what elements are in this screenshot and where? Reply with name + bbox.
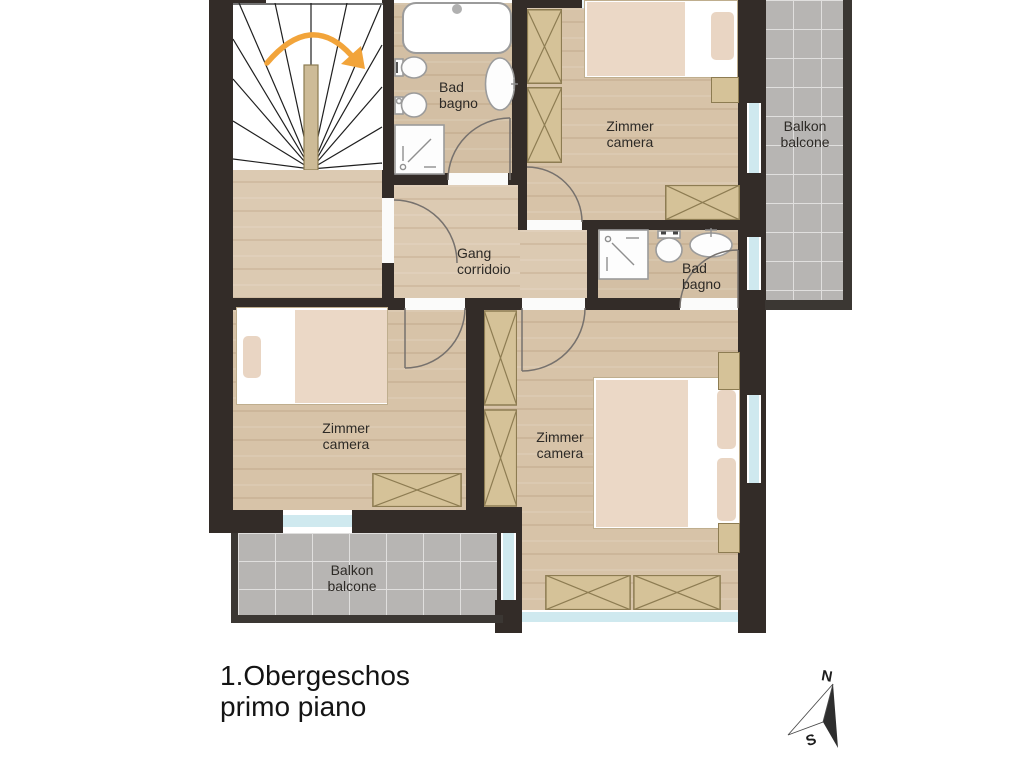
room-name-it: balcone [769,134,841,150]
room-name-de: Gang [457,245,511,261]
room-label-bath-top: Bad bagno [439,79,478,111]
room-name-it: corridoio [457,261,511,277]
room-name-de: Balkon [769,118,841,134]
room-label-balcony-bottom: Balkon balcone [312,562,392,594]
room-name-it: camera [520,445,600,461]
door-arc [405,308,465,368]
room-name-de: Zimmer [306,420,386,436]
room-label-bedroom-left: Zimmer camera [306,420,386,452]
room-name-it: bagno [682,276,721,292]
room-label-bath-right: Bad bagno [682,260,721,292]
compass-south-label: S [804,731,819,750]
door-arc [448,118,510,180]
floor-title: 1.Obergeschos primo piano [220,660,410,722]
room-label-balcony-right: Balkon balcone [769,118,841,150]
floor-title-de: 1.Obergeschos [220,660,410,691]
room-name-it: bagno [439,95,478,111]
door-arc [394,200,457,263]
compass-icon: N S [775,650,865,760]
compass-north-label: N [820,667,834,686]
room-name-de: Bad [682,260,721,276]
door-arc [527,167,582,222]
door-arc [522,308,585,371]
room-name-it: balcone [312,578,392,594]
room-name-de: Zimmer [520,429,600,445]
room-label-bedroom-top: Zimmer camera [590,118,670,150]
door-swings [0,0,1030,770]
room-label-bedroom-bottom: Zimmer camera [520,429,600,461]
room-name-it: camera [590,134,670,150]
room-name-de: Bad [439,79,478,95]
floor-title-it: primo piano [220,691,410,722]
room-name-de: Balkon [312,562,392,578]
room-name-it: camera [306,436,386,452]
room-name-de: Zimmer [590,118,670,134]
floor-plan: Bad bagno Zimmer camera Balkon balcone G… [0,0,1030,770]
room-label-corridor: Gang corridoio [457,245,511,277]
